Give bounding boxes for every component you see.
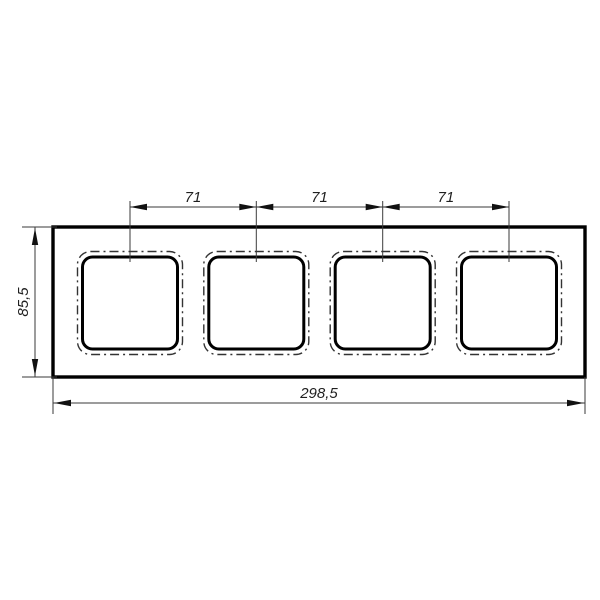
opening-3-solid-outline <box>335 257 430 349</box>
dimension-arrow-right-icon <box>567 400 584 406</box>
dimension-arrow-left-icon <box>54 400 71 406</box>
opening-3 <box>330 201 435 355</box>
dimension-arrow-bowtie-icon <box>239 204 256 210</box>
dimension-arrow-left-icon <box>130 204 147 210</box>
dimension-arrow-up-icon <box>32 228 38 245</box>
technical-drawing: 71 71 71 85,5 298,5 <box>0 0 600 600</box>
dim-label-spacing-1: 71 <box>185 189 202 206</box>
dim-label-spacing-3: 71 <box>438 189 455 206</box>
drawing-canvas: 71 71 71 85,5 298,5 <box>0 0 600 600</box>
opening-4 <box>457 201 562 355</box>
width-dimension: 298,5 <box>53 377 585 414</box>
dimension-arrow-bowtie-icon <box>383 204 400 210</box>
dim-label-width: 298,5 <box>299 385 338 402</box>
dim-label-spacing-2: 71 <box>311 189 328 206</box>
dimension-arrow-down-icon <box>32 359 38 376</box>
dimension-arrow-right-icon <box>492 204 509 210</box>
dim-label-height: 85,5 <box>15 287 32 317</box>
opening-4-solid-outline <box>462 257 557 349</box>
opening-2 <box>204 201 309 355</box>
opening-1 <box>78 201 183 355</box>
opening-2-solid-outline <box>209 257 304 349</box>
height-dimension: 85,5 <box>15 227 57 377</box>
dimension-arrow-bowtie-icon <box>256 204 273 210</box>
spacing-dimension: 71 71 71 <box>130 189 509 210</box>
dimension-arrow-bowtie-icon <box>366 204 383 210</box>
opening-1-solid-outline <box>83 257 178 349</box>
